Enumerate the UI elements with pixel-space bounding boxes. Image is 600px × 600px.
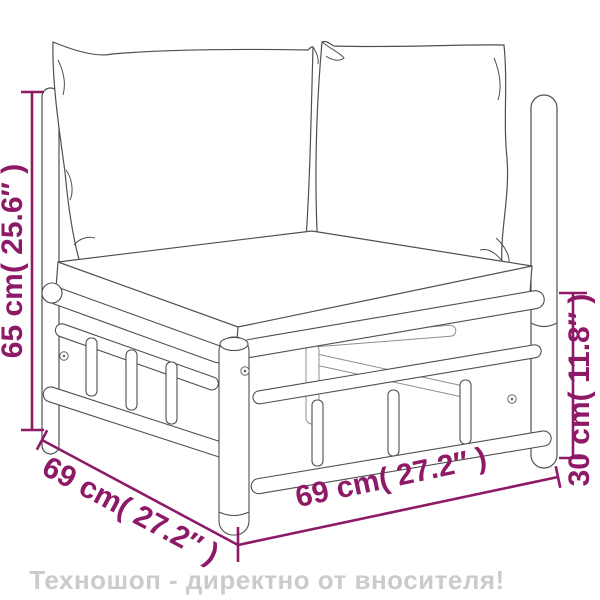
- left-back-cushion: [53, 42, 313, 263]
- dimension-right-height-label: 30 cm( 11.8″ ): [563, 294, 596, 487]
- dimension-left-height-label: 65 cm( 25.6″ ): [0, 164, 29, 358]
- right-spindle-3: [460, 380, 471, 444]
- retailer-banner: Техношоп - директно от вносителя!: [0, 565, 600, 596]
- right-spindle-1: [312, 400, 323, 466]
- left-top-rail-endcap: [42, 283, 62, 303]
- sofa-diagram-canvas: 65 cm( 25.6″ ) 30 cm( 11.8″ ) 69 cm( 27.…: [0, 0, 600, 600]
- left-spindle-1: [86, 338, 97, 396]
- dimension-depth-label: 69 cm( 27.2″ ): [37, 450, 224, 570]
- right-post: [531, 95, 557, 468]
- left-spindle-2: [126, 350, 137, 410]
- screw-dot-icon: [511, 398, 514, 401]
- screw-dot-icon: [244, 370, 247, 373]
- right-back-cushion: [316, 41, 508, 263]
- left-spindle-3: [166, 362, 177, 424]
- right-spindle-2: [388, 390, 399, 456]
- screw-dot-icon: [63, 355, 66, 358]
- crease-seam: [313, 47, 318, 64]
- product-dimension-diagram: 65 cm( 25.6″ ) 30 cm( 11.8″ ) 69 cm( 27.…: [0, 0, 600, 600]
- front-leg-cap: [220, 338, 248, 351]
- retailer-banner-text: Техношоп - директно от вносителя!: [29, 565, 504, 595]
